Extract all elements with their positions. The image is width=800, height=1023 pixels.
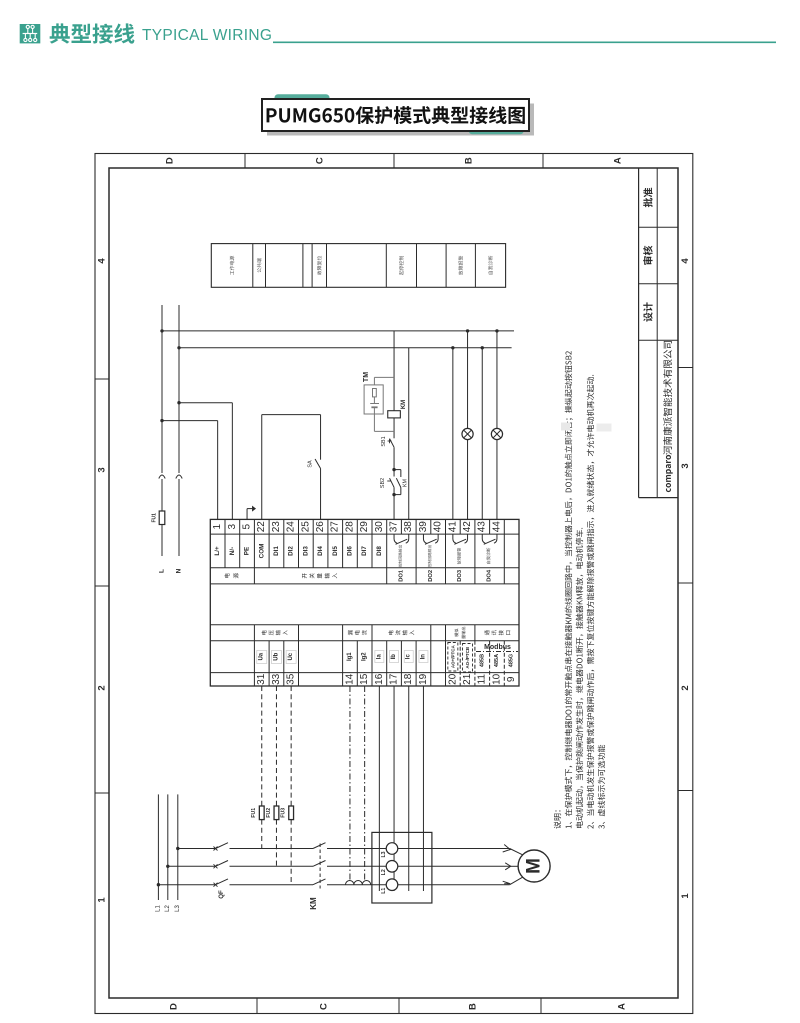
svg-text:4: 4 [680,258,691,264]
svg-text:485B: 485B [479,654,485,667]
svg-text:17: 17 [389,673,400,685]
svg-text:DO2: DO2 [428,570,434,582]
svg-text:16: 16 [374,673,385,685]
svg-text:D: D [169,1003,180,1010]
svg-text:28: 28 [344,521,355,533]
svg-text:M: M [524,858,545,874]
svg-text:Modbus: Modbus [484,644,511,651]
svg-text:40: 40 [433,521,444,533]
svg-text:485A: 485A [494,654,500,667]
svg-text:L3: L3 [175,905,181,912]
svg-text:24: 24 [286,521,297,533]
svg-text:D: D [165,157,176,164]
svg-text:44: 44 [491,521,502,533]
svg-text:31: 31 [256,673,267,685]
svg-text:5: 5 [242,523,253,529]
svg-text:11: 11 [477,674,488,685]
svg-text:Uc: Uc [288,652,294,660]
svg-text:43: 43 [477,521,488,533]
svg-text:Ia: Ia [376,654,382,660]
svg-text:22: 22 [256,521,267,533]
svg-text:DI1: DI1 [273,546,280,556]
svg-text:L/+: L/+ [214,546,221,556]
svg-text:DI8: DI8 [376,546,383,556]
svg-text:33: 33 [271,673,282,685]
svg-text:14: 14 [344,673,355,685]
svg-text:SB2: SB2 [380,478,386,488]
svg-text:DI4: DI4 [317,546,324,556]
svg-text:Ub: Ub [273,652,279,660]
svg-text:10: 10 [491,673,502,685]
svg-text:4: 4 [97,258,108,264]
svg-text:A: A [617,1003,628,1010]
svg-text:Ig2: Ig2 [362,652,368,661]
svg-text:SA: SA [308,460,314,468]
svg-text:N: N [175,568,182,573]
svg-text:L: L [158,569,165,573]
svg-text:L1: L1 [381,888,387,894]
svg-text:FU1: FU1 [251,808,257,818]
svg-text:38: 38 [403,521,414,533]
svg-text:B: B [468,1003,479,1010]
svg-text:DI5: DI5 [332,546,339,556]
svg-text:AO-/PTCB: AO-/PTCB [465,646,470,668]
svg-text:QF: QF [218,890,225,899]
svg-text:Ib: Ib [391,654,397,660]
svg-text:DI2: DI2 [288,546,295,556]
svg-text:L3: L3 [381,851,387,857]
svg-text:FU1: FU1 [152,513,158,523]
svg-text:KM: KM [402,478,408,487]
svg-text:2: 2 [680,685,691,690]
svg-text:B: B [464,157,475,164]
svg-text:C: C [315,157,326,164]
svg-text:485G: 485G [509,654,515,667]
svg-text:DI6: DI6 [346,546,353,556]
svg-text:DO4: DO4 [487,569,493,582]
svg-text:A: A [613,157,624,164]
svg-text:1: 1 [212,523,223,529]
svg-text:DO1: DO1 [398,569,404,582]
svg-text:18: 18 [403,673,414,685]
svg-text:Ic: Ic [406,654,412,660]
svg-text:DI3: DI3 [302,546,309,556]
svg-text:L2: L2 [165,905,171,912]
svg-text:1: 1 [680,893,691,899]
svg-text:DO3: DO3 [457,569,463,582]
svg-text:FU2: FU2 [266,808,272,818]
svg-text:19: 19 [418,673,429,685]
svg-text:26: 26 [315,521,326,533]
svg-text:21: 21 [462,673,473,685]
svg-text:1: 1 [97,897,108,903]
svg-text:30: 30 [374,521,385,533]
svg-text:N/-: N/- [229,547,236,555]
svg-text:Ua: Ua [259,652,265,660]
svg-text:FU3: FU3 [281,808,287,818]
svg-text:KM: KM [401,400,407,409]
svg-text:27: 27 [330,521,341,533]
svg-text:39: 39 [418,521,429,533]
svg-text:2: 2 [97,685,108,690]
svg-text:15: 15 [359,673,370,685]
svg-text:PE: PE [244,547,251,555]
svg-text:SB1: SB1 [381,436,387,446]
svg-text:DI7: DI7 [361,546,368,556]
svg-text:42: 42 [462,521,473,533]
svg-text:37: 37 [389,521,400,533]
svg-text:TM: TM [363,372,370,382]
svg-text:L1: L1 [155,905,161,912]
svg-text:3: 3 [227,523,238,529]
svg-text:3: 3 [97,467,108,472]
svg-text:COM: COM [258,544,265,559]
svg-text:3: 3 [680,463,691,468]
svg-text:In: In [420,654,426,660]
svg-text:25: 25 [300,521,311,533]
svg-text:AO+/PTCA: AO+/PTCA [450,645,455,669]
svg-text:41: 41 [447,521,458,533]
svg-text:C: C [319,1003,330,1010]
svg-text:KM: KM [309,897,318,910]
svg-text:L2: L2 [381,869,387,875]
svg-text:Ig1: Ig1 [347,652,353,661]
svg-text:TYPICAL WIRING: TYPICAL WIRING [142,27,272,44]
svg-text:29: 29 [359,521,370,533]
svg-text:23: 23 [271,521,282,533]
svg-text:20: 20 [447,673,458,685]
svg-text:9: 9 [506,676,517,682]
svg-text:35: 35 [286,673,297,685]
